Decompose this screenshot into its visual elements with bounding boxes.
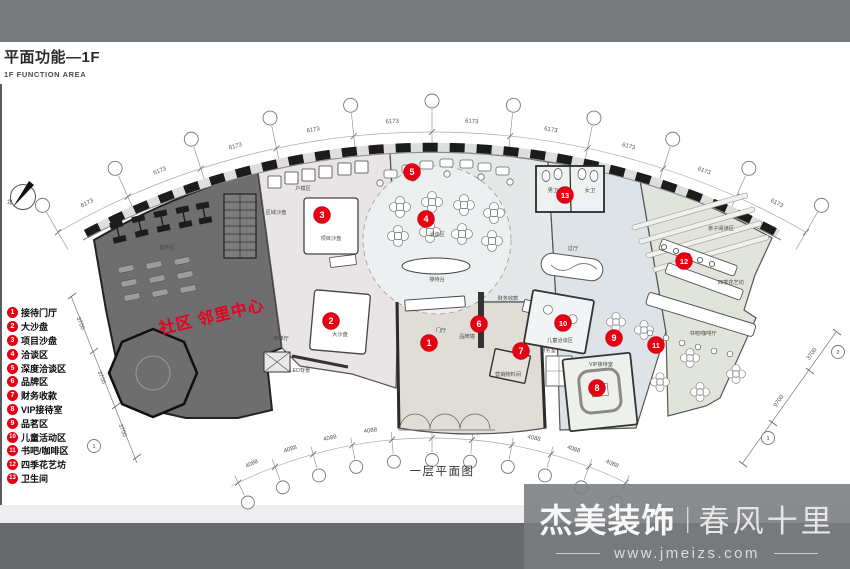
plan-marker-1: 1 [421, 335, 438, 352]
dim-label-top: 6173 [465, 119, 479, 126]
svg-text:10: 10 [559, 319, 567, 328]
function-legend: 1接待门厅2大沙盘3项目沙盘4洽谈区5深度洽谈区6品牌区7财务收款8VIP接待室… [7, 306, 69, 485]
grid-bubble [241, 496, 254, 509]
legend-number-badge: 6 [7, 376, 18, 387]
legend-item-label: 卫生间 [21, 472, 48, 485]
dim-label-top: 6173 [769, 198, 784, 210]
svg-text:11: 11 [652, 341, 660, 350]
legend-item: 12四季花艺坊 [7, 458, 69, 472]
legend-item-label: 接待门厅 [21, 306, 57, 319]
reception-desk [402, 258, 470, 274]
brand-divider: | [686, 502, 690, 534]
grid-bubble [501, 460, 514, 473]
compass-icon: 北 [7, 181, 36, 210]
legend-item: 9品茗区 [7, 416, 69, 430]
room-label: 电梯厅 [273, 334, 289, 342]
grid-bubble [742, 161, 756, 175]
dim-label-bottom: 4088 [566, 445, 581, 455]
grid-bubble-label: 1 [766, 436, 769, 442]
svg-text:7: 7 [518, 346, 523, 356]
project-sandtable [304, 198, 358, 254]
grid-bubble [350, 460, 363, 473]
legend-number-badge: 8 [7, 404, 18, 415]
room-label: 项目沙盘 [321, 234, 342, 242]
svg-text:1: 1 [426, 338, 431, 348]
plan-marker-3: 3 [314, 207, 331, 224]
legend-item: 5深度洽谈区 [7, 361, 69, 375]
brand-url: www.jmeizs.com [614, 545, 760, 562]
grid-bubble [426, 454, 439, 467]
legend-number-badge: 10 [7, 432, 18, 443]
grid-bubble [344, 98, 358, 112]
room-label: 过厅 [568, 244, 578, 252]
svg-text:9: 9 [611, 333, 616, 343]
plan-caption: 一层平面图 [410, 465, 475, 478]
room-label: 区域沙盘 [266, 208, 287, 216]
plan-marker-6: 6 [471, 316, 488, 333]
grid-bubble [587, 111, 601, 125]
legend-item-label: 项目沙盘 [21, 334, 57, 347]
plan-marker-8: 8 [589, 380, 606, 397]
plan-marker-9: 9 [606, 330, 623, 347]
dim-label-top: 6173 [306, 126, 321, 134]
url-dash-right [774, 553, 818, 554]
legend-item-label: VIP接待室 [21, 403, 63, 416]
room-label: 门厅 [436, 326, 446, 334]
grid-bubble [36, 198, 50, 212]
plan-marker-11: 11 [648, 337, 665, 354]
room-label: 书吧/咖啡厅 [689, 329, 716, 337]
legend-item: 13卫生间 [7, 472, 69, 486]
room-label: 女卫 [585, 186, 595, 194]
grid-bubble-label: 1 [92, 444, 95, 450]
legend-number-badge: 9 [7, 418, 18, 429]
room-label: 财务收款 [498, 294, 520, 302]
legend-item-label: 财务收款 [21, 389, 57, 402]
dim-label-bottom: 4088 [605, 459, 620, 470]
elevator-shaft [264, 352, 290, 372]
room-label: 健身区 [159, 243, 175, 251]
grid-bubble [184, 132, 198, 146]
legend-number-badge: 3 [7, 335, 18, 346]
legend-number-badge: 12 [7, 459, 18, 470]
legend-item-label: 四季花艺坊 [21, 458, 66, 471]
svg-text:4: 4 [423, 214, 428, 224]
url-dash-left [556, 553, 600, 554]
legend-number-badge: 5 [7, 363, 18, 374]
legend-item: 3项目沙盘 [7, 334, 69, 348]
legend-number-badge: 13 [7, 473, 18, 484]
dim-label-top: 6173 [153, 166, 168, 177]
legend-number-badge: 2 [7, 321, 18, 332]
grid-bubble [538, 469, 551, 482]
grid-bubble [815, 198, 829, 212]
grid-bubble [506, 98, 520, 112]
legend-item: 8VIP接待室 [7, 403, 69, 417]
compass-label: 北 [7, 198, 13, 206]
grid-bubble [108, 161, 122, 175]
room-label: VIP接待室 [589, 360, 613, 368]
room-label: 洽谈区 [429, 230, 445, 238]
dim-label-bottom: 4088 [323, 434, 338, 443]
room-label: 户模区 [295, 184, 311, 192]
legend-item-label: 深度洽谈区 [21, 362, 66, 375]
svg-text:13: 13 [561, 191, 569, 200]
dim-label-bottom: 4088 [527, 434, 542, 443]
legend-item-label: 书吧/咖啡区 [21, 444, 69, 457]
dim-label-top: 6173 [621, 142, 636, 151]
room-label: 品牌墙 [459, 332, 475, 340]
svg-text:3: 3 [319, 210, 324, 220]
legend-item-label: 儿童活动区 [21, 431, 66, 444]
svg-text:8: 8 [594, 383, 599, 393]
dim-label-top: 6173 [697, 166, 712, 177]
legend-item-label: 品茗区 [21, 417, 48, 430]
plan-marker-5: 5 [404, 164, 421, 181]
plan-marker-2: 2 [323, 313, 340, 330]
legend-item: 10儿童活动区 [7, 430, 69, 444]
room-label: 大沙盘 [332, 330, 348, 338]
plan-marker-10: 10 [555, 315, 572, 332]
dim-label-bottom: 4088 [363, 427, 378, 435]
legend-item: 6品牌区 [7, 375, 69, 389]
plan-marker-7: 7 [513, 343, 530, 360]
legend-item-label: 品牌区 [21, 375, 48, 388]
svg-text:12: 12 [680, 257, 688, 266]
svg-text:5: 5 [409, 167, 414, 177]
master-sandtable [309, 290, 370, 355]
room-label: 接待台 [429, 275, 445, 283]
dim-label-top: 6173 [228, 142, 243, 151]
brand-footer: 杰美装饰 | 春风十里 www.jmeizs.com [524, 484, 850, 569]
dim-label-left: 3700 [96, 370, 107, 385]
turret-room [109, 329, 197, 417]
room-label: 四季花艺坊 [718, 278, 744, 286]
dim-label-top: 6173 [544, 126, 559, 134]
room-label: 财务室 [540, 346, 556, 354]
plan-marker-12: 12 [676, 253, 693, 270]
dim-label-right: 9700 [773, 394, 786, 409]
legend-number-badge: 11 [7, 445, 18, 456]
dim-label-left: 3700 [117, 423, 128, 438]
grid-bubble [276, 481, 289, 494]
legend-item: 1接待门厅 [7, 306, 69, 320]
brand-name: 杰美装饰 [539, 494, 675, 542]
dim-label-bottom: 4088 [245, 459, 260, 470]
legend-item: 2大沙盘 [7, 320, 69, 334]
plan-marker-13: 13 [557, 187, 574, 204]
dim-label-bottom: 4088 [283, 445, 298, 455]
grid-bubble [263, 111, 277, 125]
grid-bubble-label: 2 [836, 350, 839, 356]
legend-item: 11书吧/咖啡区 [7, 444, 69, 458]
plan-marker-4: 4 [418, 211, 435, 228]
room-label: 亲子阅读区 [708, 224, 734, 232]
grid-bubble [425, 94, 439, 108]
grid-bubble [666, 132, 680, 146]
legend-item: 4洽谈区 [7, 347, 69, 361]
room-label: 营销物料间 [495, 370, 521, 378]
dim-label-top: 6173 [80, 198, 95, 210]
svg-text:2: 2 [328, 316, 333, 326]
legend-number-badge: 1 [7, 307, 18, 318]
grid-bubble [387, 455, 400, 468]
dim-label-top: 6173 [385, 119, 399, 126]
legend-item-label: 大沙盘 [21, 320, 48, 333]
room-label: LED背景 [290, 366, 310, 374]
legend-number-badge: 4 [7, 349, 18, 360]
svg-text:6: 6 [476, 319, 481, 329]
grid-bubble [313, 469, 326, 482]
room-label: 儿童洽谈区 [547, 336, 573, 344]
legend-item: 7财务收款 [7, 389, 69, 403]
legend-number-badge: 7 [7, 390, 18, 401]
legend-item-label: 洽谈区 [21, 348, 48, 361]
brand-slogan: 春风十里 [699, 496, 835, 541]
